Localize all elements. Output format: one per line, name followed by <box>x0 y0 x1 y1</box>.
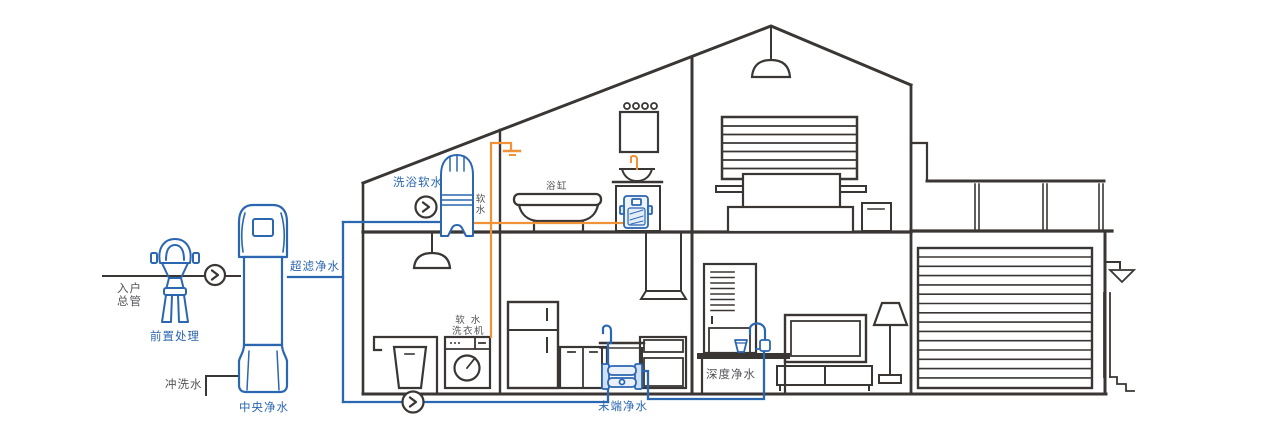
label-soft-water-vertical: 软 水 <box>474 194 487 216</box>
nightstand <box>862 203 891 231</box>
wall-step <box>911 143 927 181</box>
label-pre-treatment: 前置处理 <box>150 330 200 343</box>
floor-lamp <box>874 303 907 383</box>
bathtub <box>514 194 601 231</box>
label-flush-water: 冲洗水 <box>165 378 203 391</box>
flow-indicator-attic <box>416 197 437 218</box>
pendant-lamp-laundry <box>414 234 450 268</box>
central-purifier-unit <box>239 205 287 392</box>
outdoor-faucet <box>1105 262 1134 282</box>
label-central-purification: 中央净水 <box>239 401 289 414</box>
water-dispenser-cabinet <box>704 264 756 353</box>
label-bath-softening: 洗浴软水 <box>393 176 443 189</box>
laundry-hamper <box>394 347 426 388</box>
diagram-art <box>0 0 1280 434</box>
water-system-diagram: 入户 总管 前置处理 冲洗水 中央净水 超滤净水 洗浴软水 软 水 浴缸 软 水… <box>0 0 1280 434</box>
label-softwater-washer: 软 水 洗衣机 <box>452 316 485 338</box>
kitchen-cabinets <box>560 347 607 388</box>
flow-indicator-entry <box>205 265 225 285</box>
garden-steps <box>1110 377 1134 391</box>
label-bathtub: 浴缸 <box>546 182 568 193</box>
mirror-lights <box>624 103 657 109</box>
window-blinds <box>722 117 857 179</box>
water-cup <box>735 340 747 352</box>
range-hood <box>641 232 686 299</box>
pendant-lamp-bedroom <box>752 28 790 77</box>
headboard <box>743 174 840 208</box>
under-sink-heater <box>620 196 652 228</box>
label-entry-main: 入户 总管 <box>117 282 142 308</box>
laundry-counter <box>374 337 437 393</box>
tv <box>785 315 866 362</box>
flow-indicator-basement <box>403 392 424 413</box>
terrace-railing <box>927 181 1104 229</box>
washing-machine <box>445 337 490 388</box>
pre-filter-unit <box>151 239 199 322</box>
water-softener-tank <box>441 155 473 236</box>
garage-door <box>918 248 1092 388</box>
vanity-sink <box>622 169 652 181</box>
label-terminal-purification: 末端净水 <box>598 400 648 413</box>
label-deep-purification: 深度净水 <box>706 368 756 381</box>
bed <box>728 207 853 232</box>
dispenser-tap-fixture <box>756 336 770 351</box>
tv-stand <box>777 366 872 390</box>
kitchen-faucet <box>603 326 611 343</box>
fridge <box>508 302 558 388</box>
label-ultrafiltration: 超滤净水 <box>290 260 340 273</box>
flush-water-line <box>206 376 239 395</box>
ro-filter-unit <box>602 364 642 389</box>
vanity-faucet <box>631 156 637 169</box>
downspout <box>1104 293 1110 377</box>
mirror <box>620 112 658 152</box>
